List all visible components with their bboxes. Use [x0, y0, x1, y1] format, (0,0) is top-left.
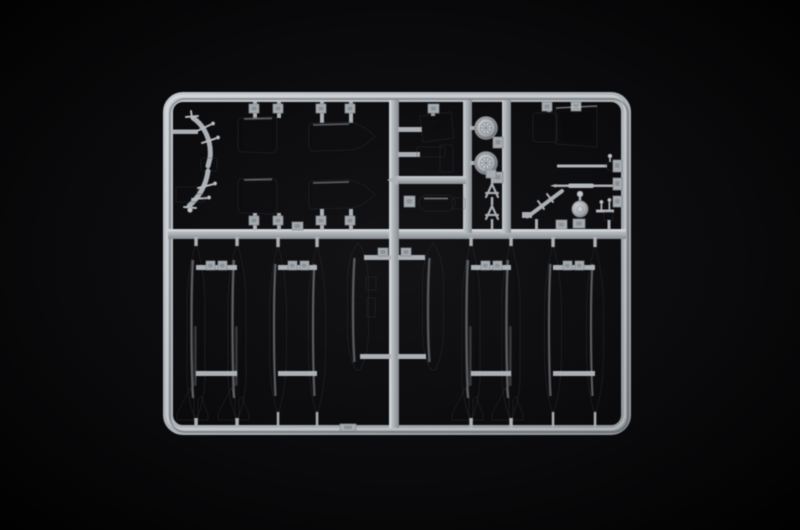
sprue-photo: Product photo of a light gray injection-… — [0, 0, 800, 530]
runner-sub-horizontal — [396, 176, 466, 184]
runner-v3 — [502, 100, 511, 233]
main-wheel-1 — [475, 117, 498, 140]
runner-v2 — [463, 100, 472, 233]
photo-background — [0, 0, 800, 530]
